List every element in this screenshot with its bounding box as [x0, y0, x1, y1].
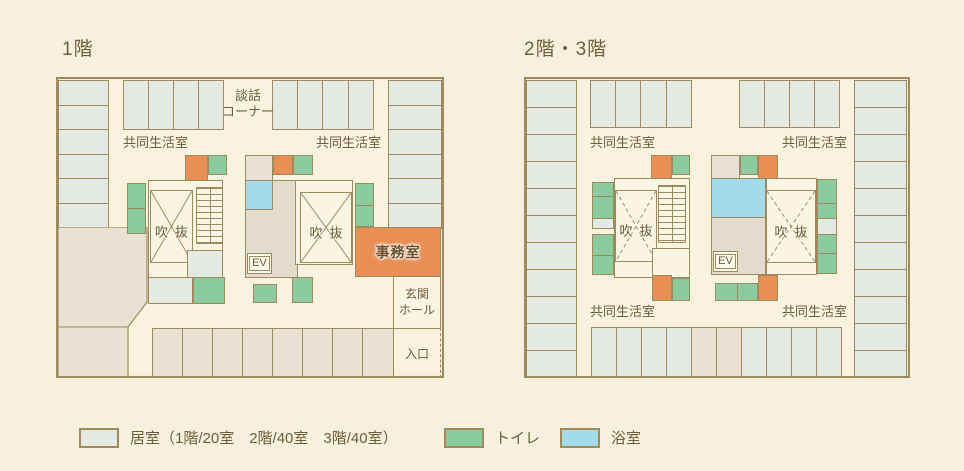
room-cell — [854, 80, 907, 108]
service-room — [711, 155, 740, 179]
room-cell — [322, 80, 349, 130]
atrium-void: 吹抜 — [615, 190, 657, 262]
room-cell — [526, 296, 577, 324]
corridor-cell — [691, 327, 717, 377]
floorplan-page: 1階 2階・3階 吹抜吹抜EV事務室玄関 ホール入口談話 コーナー共同生活室共同… — [0, 0, 964, 471]
room-cell — [526, 161, 577, 189]
stairs — [196, 187, 223, 244]
room-cell — [152, 328, 183, 378]
room-cell — [526, 80, 577, 108]
toilet-cell — [592, 234, 614, 256]
label-common-living: 共同生活室 — [782, 304, 847, 320]
room-cell — [590, 80, 616, 128]
room-cell — [854, 161, 907, 189]
room-cell — [58, 154, 109, 179]
toilet-cell — [592, 182, 614, 197]
room-cell — [148, 277, 193, 304]
room-cell — [739, 80, 765, 128]
room-cell — [592, 218, 614, 229]
toilet-cell — [740, 155, 758, 175]
room-cell — [198, 80, 224, 130]
room-cell — [58, 129, 109, 155]
label-common-living: 共同生活室 — [123, 135, 188, 151]
room-cell — [297, 80, 323, 130]
toilet-cell — [592, 255, 614, 275]
room-cell — [173, 80, 199, 130]
room-cell — [58, 203, 109, 229]
room-cell — [388, 105, 442, 130]
large-room — [58, 227, 148, 378]
service-room — [758, 155, 778, 179]
label-common-living: 共同生活室 — [590, 135, 655, 151]
room-cell — [854, 242, 907, 270]
room-cell — [526, 215, 577, 243]
room-cell — [652, 248, 690, 278]
room-cell — [388, 154, 442, 179]
room-cell — [817, 218, 837, 235]
toilet-cell — [355, 205, 374, 227]
room-cell — [616, 327, 642, 377]
bath-cell — [711, 178, 766, 218]
bath-cell — [245, 180, 273, 210]
room-cell — [741, 327, 767, 377]
room-cell — [526, 188, 577, 216]
room-cell — [526, 107, 577, 135]
atrium-void: 吹抜 — [766, 190, 816, 263]
toilet-cell — [253, 284, 277, 303]
toilet-cell — [672, 155, 690, 175]
plan-title-1f: 1階 — [62, 34, 94, 61]
legend-swatch-bath — [560, 428, 600, 448]
toilet-cell — [193, 277, 225, 304]
toilet-cell — [127, 208, 146, 234]
plan-title-2f3f: 2階・3階 — [524, 34, 607, 61]
room-cell — [816, 327, 842, 377]
label-common-living: 共同生活室 — [782, 135, 847, 151]
room-cell — [58, 105, 109, 130]
corridor-cell — [716, 327, 742, 377]
room-cell — [526, 323, 577, 351]
toilet-cell — [355, 183, 374, 206]
room-cell — [388, 80, 442, 106]
office-room: 事務室 — [355, 227, 441, 277]
toilet-cell — [817, 203, 837, 219]
toilet-cell — [817, 253, 837, 274]
service-room — [652, 275, 672, 301]
label-common-living: 共同生活室 — [590, 304, 655, 320]
floor-plan-2f3f: 吹抜EV吹抜共同生活室共同生活室共同生活室共同生活室 — [524, 77, 910, 378]
elevator: EV — [713, 251, 738, 272]
room-cell — [789, 80, 815, 128]
room-cell — [666, 80, 692, 128]
legend-item-bath: 浴室 — [560, 427, 641, 448]
room-cell — [854, 296, 907, 324]
room-cell — [123, 80, 149, 130]
legend-label-toilet: トイレ — [495, 427, 540, 448]
room-cell — [766, 327, 792, 377]
toilet-cell — [817, 179, 837, 204]
room-cell — [388, 178, 442, 204]
service-room — [245, 155, 273, 181]
service-room — [273, 155, 293, 175]
room-cell — [348, 80, 374, 130]
room-cell — [388, 203, 442, 229]
room-cell — [526, 134, 577, 162]
room-cell — [640, 80, 667, 128]
toilet-cell — [737, 283, 758, 301]
label-lounge-corner: 談話 コーナー — [222, 88, 274, 121]
room-cell — [58, 80, 109, 106]
room-cell — [854, 269, 907, 297]
toilet-cell — [127, 183, 146, 209]
toilet-cell — [592, 196, 614, 219]
room-cell — [58, 178, 109, 204]
room-cell — [854, 134, 907, 162]
toilet-cell — [817, 234, 837, 254]
toilet-cell — [672, 278, 690, 301]
room-cell — [526, 350, 577, 377]
atrium-void: 吹抜 — [300, 192, 352, 263]
service-room — [651, 155, 672, 179]
legend-label-guest-room: 居室（1階/20室 2階/40室 3階/40室） — [130, 427, 398, 448]
room-cell — [187, 250, 223, 278]
room-cell — [854, 323, 907, 351]
room-cell — [666, 327, 692, 377]
room-cell — [814, 80, 840, 128]
room-cell — [302, 328, 333, 378]
room-cell — [615, 80, 641, 128]
label-common-living: 共同生活室 — [316, 135, 381, 151]
toilet-cell — [293, 155, 313, 175]
toilet-cell — [292, 277, 313, 303]
legend-swatch-guest-room — [79, 428, 119, 448]
room-cell — [764, 80, 790, 128]
room-cell — [526, 242, 577, 270]
service-room — [758, 275, 778, 301]
service-room — [185, 155, 208, 181]
room-cell — [526, 269, 577, 297]
toilet-cell — [208, 155, 227, 175]
room-cell — [854, 350, 907, 377]
room-cell — [212, 328, 243, 378]
room-cell — [641, 327, 667, 377]
room-cell — [362, 328, 394, 378]
room-cell — [148, 80, 174, 130]
legend-item-guest-room: 居室（1階/20室 2階/40室 3階/40室） — [79, 427, 398, 448]
legend-item-toilet: トイレ — [444, 427, 540, 448]
legend-label-bath: 浴室 — [611, 427, 641, 448]
stairs — [658, 185, 686, 243]
room-cell — [332, 328, 363, 378]
room-cell — [272, 328, 303, 378]
room-cell — [854, 107, 907, 135]
floor-plan-1f: 吹抜吹抜EV事務室玄関 ホール入口談話 コーナー共同生活室共同生活室 — [56, 77, 444, 378]
toilet-cell — [715, 283, 738, 301]
elevator: EV — [247, 253, 272, 274]
room-cell — [791, 327, 817, 377]
legend-swatch-toilet — [444, 428, 484, 448]
entrance-hall: 玄関 ホール — [393, 276, 441, 329]
entrance: 入口 — [393, 328, 441, 378]
room-cell — [854, 215, 907, 243]
room-cell — [854, 188, 907, 216]
room-cell — [242, 328, 273, 378]
room-cell — [591, 327, 617, 377]
room-cell — [388, 129, 442, 155]
room-cell — [272, 80, 298, 130]
room-cell — [182, 328, 213, 378]
